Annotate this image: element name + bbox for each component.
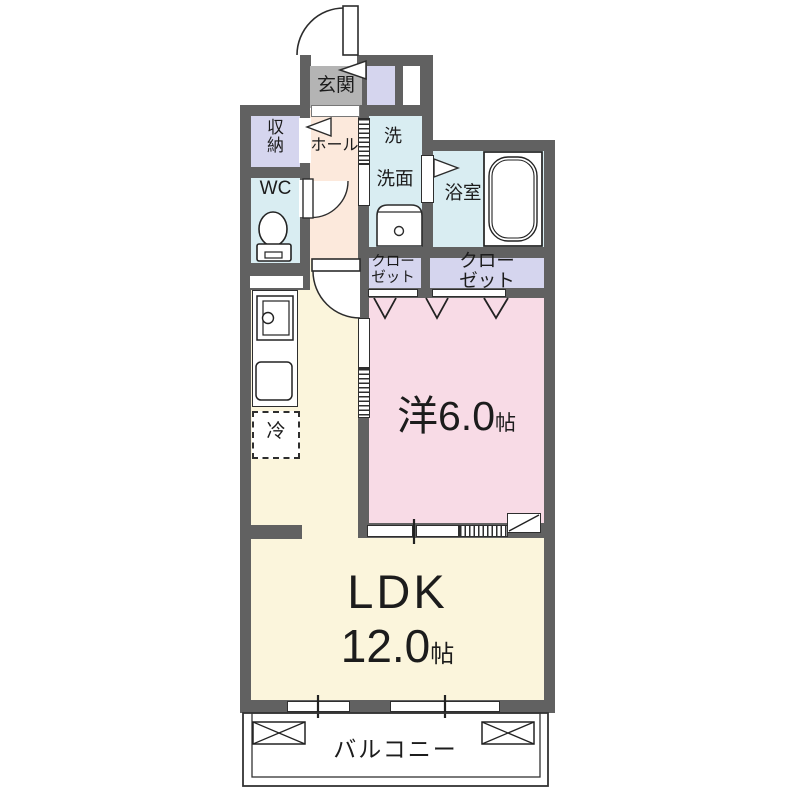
entrance-door-arc: [297, 8, 344, 55]
entrance-white-cabinet: [403, 64, 420, 105]
room-ldk-floor-upper: [310, 256, 360, 296]
kitchen-back-opening: [250, 276, 303, 288]
wall: [422, 55, 433, 155]
room-label-wc: WC: [251, 179, 300, 200]
wall: [240, 167, 310, 178]
bedroom-size-unit: 帖: [495, 413, 516, 436]
room-label-closet-right: クロー ゼット: [430, 251, 544, 291]
wall: [433, 140, 555, 151]
wall-stub: [240, 525, 302, 539]
wall: [300, 55, 310, 277]
room-label-bathroom: 浴室: [433, 183, 493, 203]
room-hall-floor: [310, 110, 359, 260]
wall: [421, 258, 430, 288]
balcony-window-2: [390, 701, 500, 712]
bedroom-sliding-door-panel: [358, 318, 370, 368]
room-label-bedroom: 洋6.0 帖: [369, 394, 544, 438]
balcony-window-1: [287, 701, 350, 712]
room-label-genkan: 玄関: [310, 76, 362, 97]
wall: [544, 140, 555, 713]
shoe-cabinet: [367, 64, 395, 105]
wc-door-opening: [299, 180, 311, 217]
ldk-size-unit: 帖: [430, 642, 454, 668]
bedroom-ldk-door-track: [459, 525, 508, 537]
closet-left-door: [368, 289, 418, 297]
bedroom-ldk-sliding-door-2: [416, 525, 459, 537]
kitchen-counter: [252, 290, 298, 407]
wall: [422, 203, 433, 247]
room-label-ldk-size: 12.0 帖: [251, 622, 544, 672]
room-label-laundry: 洗: [369, 127, 417, 146]
bedroom-corner-window: [507, 513, 541, 533]
bedroom-ldk-sliding-door-1: [367, 525, 413, 537]
room-label-washroom: 洗面: [367, 169, 423, 189]
room-label-closet-left: クロー ゼット: [365, 255, 421, 286]
room-label-hall: ホール: [310, 137, 359, 154]
entrance-door-leaf: [343, 6, 358, 55]
room-label-storage: 収 納: [251, 119, 300, 156]
bedroom-size-text: 洋6.0: [397, 394, 495, 438]
wall: [240, 105, 251, 713]
room-label-ldk: LDK: [251, 567, 544, 618]
room-label-refrigerator: 冷: [252, 422, 300, 443]
entrance-opening: [311, 53, 357, 66]
floor-plan: 玄関 収 納 WC ホール 洗 洗面 浴室 クロー ゼット クロー ゼット 洋6…: [0, 0, 800, 800]
room-label-balcony: バルコニー: [243, 737, 548, 762]
genkan-step-threshold: [311, 105, 360, 117]
ldk-size-text: 12.0: [341, 622, 431, 672]
